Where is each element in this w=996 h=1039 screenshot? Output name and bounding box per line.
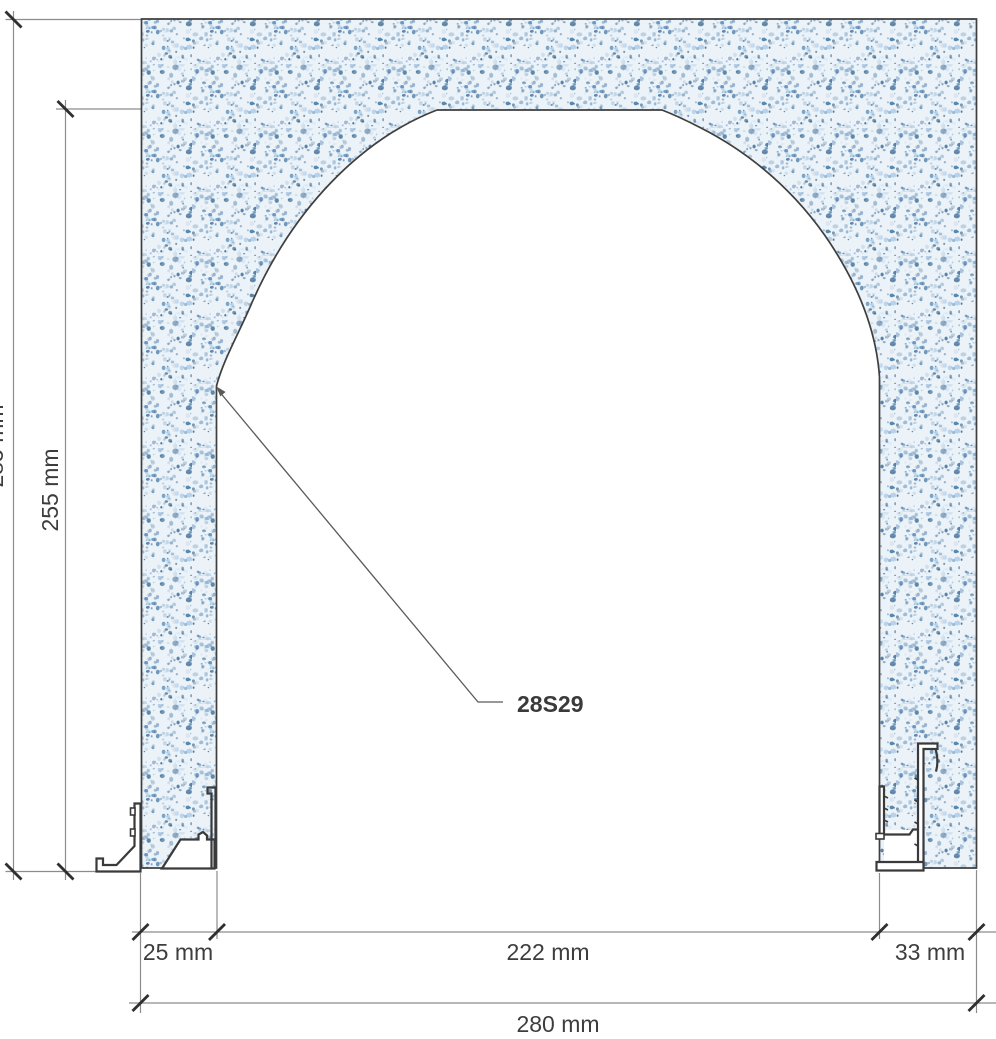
part-callout: 28S29 xyxy=(217,387,584,718)
overall-width-label: 280 mm xyxy=(516,1011,599,1037)
technical-drawing-canvas: 28S29 285 mm 255 mm 25 mm 222 mm 33 mm 2… xyxy=(0,0,996,1039)
right-profile-foot xyxy=(876,834,884,840)
opening-width-label: 222 mm xyxy=(506,939,589,965)
overall-height-label: 285 mm xyxy=(0,404,8,487)
opening-height-label: 255 mm xyxy=(37,448,63,531)
right-profile-flange xyxy=(877,862,924,871)
part-number-label: 28S29 xyxy=(517,691,584,717)
section-drawing: 28S29 285 mm 255 mm 25 mm 222 mm 33 mm 2… xyxy=(0,0,996,1039)
left-profile-barb xyxy=(131,829,136,836)
left-profile-barb xyxy=(131,808,136,815)
left-jamb-width-label: 25 mm xyxy=(143,939,213,965)
wall-section xyxy=(142,19,977,868)
right-profile-jamb-strip xyxy=(880,787,885,835)
leader-line xyxy=(218,390,503,702)
right-jamb-width-label: 33 mm xyxy=(895,939,965,965)
leader-arrowhead-icon xyxy=(217,387,226,397)
